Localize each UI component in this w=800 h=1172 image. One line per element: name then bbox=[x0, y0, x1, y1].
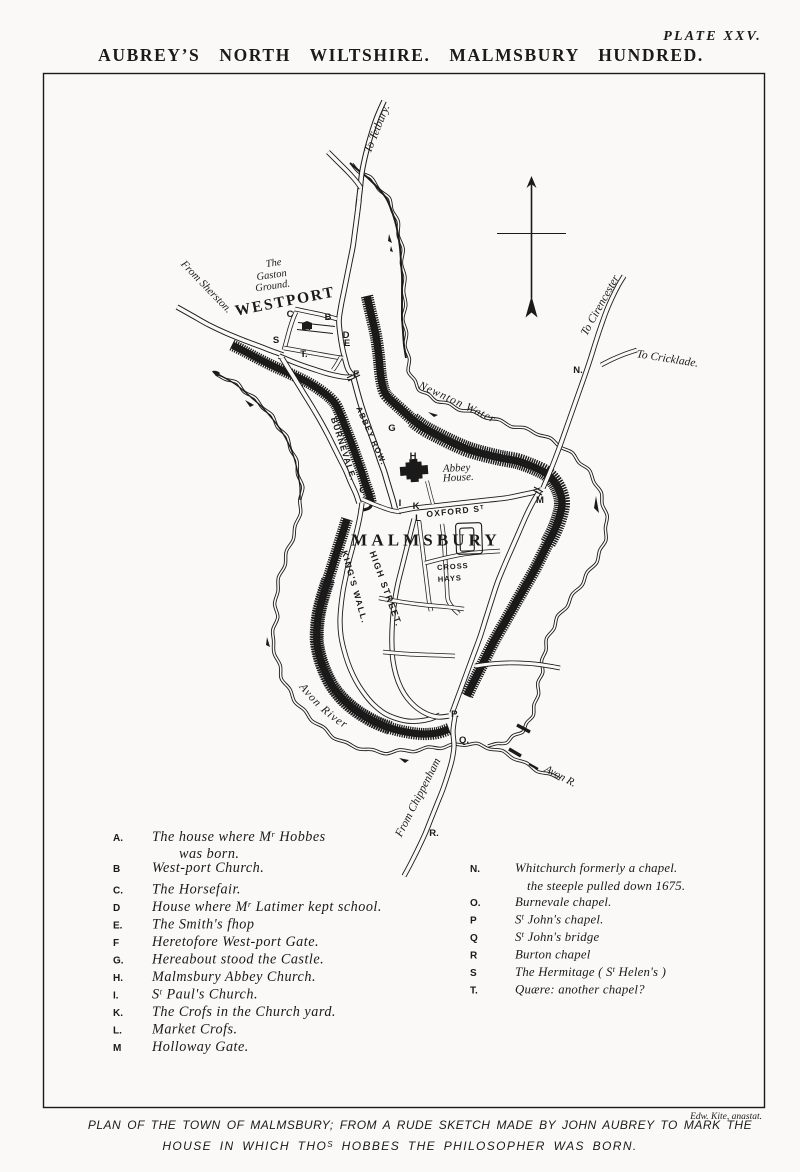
svg-text:From Sherston.: From Sherston. bbox=[178, 258, 235, 316]
svg-text:B: B bbox=[113, 864, 120, 875]
svg-text:A: A bbox=[304, 322, 311, 333]
svg-text:St John's bridge: St John's bridge bbox=[515, 929, 599, 944]
svg-text:C: C bbox=[287, 309, 294, 320]
svg-text:H: H bbox=[410, 451, 417, 462]
svg-text:O: O bbox=[359, 485, 366, 496]
svg-text:M: M bbox=[113, 1043, 121, 1054]
svg-text:S: S bbox=[470, 968, 477, 979]
svg-text:The Crofs in the Church yard.: The Crofs in the Church yard. bbox=[152, 1004, 336, 1020]
svg-text:G: G bbox=[388, 423, 395, 434]
svg-text:T.: T. bbox=[470, 986, 478, 997]
svg-text:St Paul's Church.: St Paul's Church. bbox=[152, 987, 258, 1003]
svg-text:To Tetbury.: To Tetbury. bbox=[362, 103, 392, 155]
svg-text:Q.: Q. bbox=[459, 735, 469, 746]
svg-text:P.: P. bbox=[451, 709, 459, 720]
svg-text:HAYS: HAYS bbox=[437, 573, 462, 584]
svg-text:O.: O. bbox=[470, 898, 481, 909]
svg-text:Avon R.: Avon R. bbox=[542, 763, 579, 790]
svg-text:The Horsefair.: The Horsefair. bbox=[152, 882, 241, 898]
svg-text:The Hermitage ( St Helen's ): The Hermitage ( St Helen's ) bbox=[515, 964, 666, 979]
svg-text:F: F bbox=[113, 938, 119, 949]
svg-text:The house where Mr Hobbes: The house where Mr Hobbes bbox=[152, 829, 326, 845]
svg-text:A.: A. bbox=[113, 833, 123, 844]
svg-text:House where Mr Latimer kept sc: House where Mr Latimer kept school. bbox=[151, 899, 382, 915]
svg-text:Market Crofs.: Market Crofs. bbox=[151, 1022, 238, 1038]
svg-text:St John's chapel.: St John's chapel. bbox=[515, 912, 603, 927]
svg-text:The Smith's fhop: The Smith's fhop bbox=[152, 917, 254, 933]
svg-text:L.: L. bbox=[113, 1026, 122, 1037]
svg-text:CROSS: CROSS bbox=[437, 561, 469, 572]
svg-text:G.: G. bbox=[113, 956, 124, 967]
svg-text:Q: Q bbox=[470, 933, 478, 944]
svg-text:Holloway Gate.: Holloway Gate. bbox=[151, 1039, 249, 1055]
svg-text:Burton chapel: Burton chapel bbox=[515, 948, 591, 962]
svg-text:E.: E. bbox=[113, 921, 123, 932]
svg-text:D: D bbox=[113, 903, 120, 914]
svg-text:T.: T. bbox=[300, 349, 307, 360]
svg-text:Malmsbury Abbey Church.: Malmsbury Abbey Church. bbox=[151, 969, 316, 985]
svg-text:Newnton Water: Newnton Water bbox=[416, 379, 498, 425]
svg-text:Hereabout stood the Castle.: Hereabout stood the Castle. bbox=[151, 952, 324, 968]
svg-text:H.: H. bbox=[113, 973, 123, 984]
svg-text:Heretofore West-port Gate.: Heretofore West-port Gate. bbox=[151, 934, 319, 950]
svg-text:PLATE XXV.: PLATE XXV. bbox=[663, 29, 762, 44]
svg-text:Quære: another chapel?: Quære: another chapel? bbox=[515, 983, 645, 997]
svg-text:HOUSE IN WHICH THOS HOBBES THE: HOUSE IN WHICH THOS HOBBES THE PHILOSOPH… bbox=[162, 1139, 637, 1153]
svg-text:K: K bbox=[413, 501, 420, 512]
svg-text:R: R bbox=[470, 951, 478, 962]
svg-text:B: B bbox=[325, 312, 332, 323]
svg-text:C.: C. bbox=[113, 886, 123, 897]
svg-text:P: P bbox=[470, 916, 477, 927]
svg-text:R.: R. bbox=[429, 828, 439, 839]
svg-text:M: M bbox=[536, 495, 544, 506]
svg-text:I.: I. bbox=[113, 991, 119, 1002]
svg-text:Whitchurch formerly a chapel.: Whitchurch formerly a chapel. bbox=[515, 861, 677, 875]
svg-text:N.: N. bbox=[573, 365, 583, 376]
svg-text:MALMSBURY: MALMSBURY bbox=[351, 531, 501, 550]
svg-text:I: I bbox=[399, 498, 402, 509]
svg-text:F: F bbox=[353, 369, 359, 380]
svg-text:N.: N. bbox=[470, 864, 480, 875]
svg-text:S: S bbox=[273, 335, 279, 346]
svg-text:AUBREY’S NORTH WILTSHIRE. MALM: AUBREY’S NORTH WILTSHIRE. MALMSBURY HUND… bbox=[98, 45, 704, 65]
svg-text:West-port Church.: West-port Church. bbox=[152, 860, 264, 876]
svg-text:L: L bbox=[415, 513, 421, 524]
svg-text:House.: House. bbox=[442, 471, 474, 485]
svg-text:Burnevale chapel.: Burnevale chapel. bbox=[515, 895, 612, 909]
svg-text:E: E bbox=[344, 338, 350, 349]
svg-text:the steeple pulled down 1675.: the steeple pulled down 1675. bbox=[527, 879, 685, 893]
svg-text:K.: K. bbox=[113, 1008, 123, 1019]
svg-text:To Cricklade.: To Cricklade. bbox=[636, 348, 699, 370]
svg-text:PLAN OF THE TOWN OF MALMSBURY;: PLAN OF THE TOWN OF MALMSBURY; FROM A RU… bbox=[88, 1118, 753, 1132]
